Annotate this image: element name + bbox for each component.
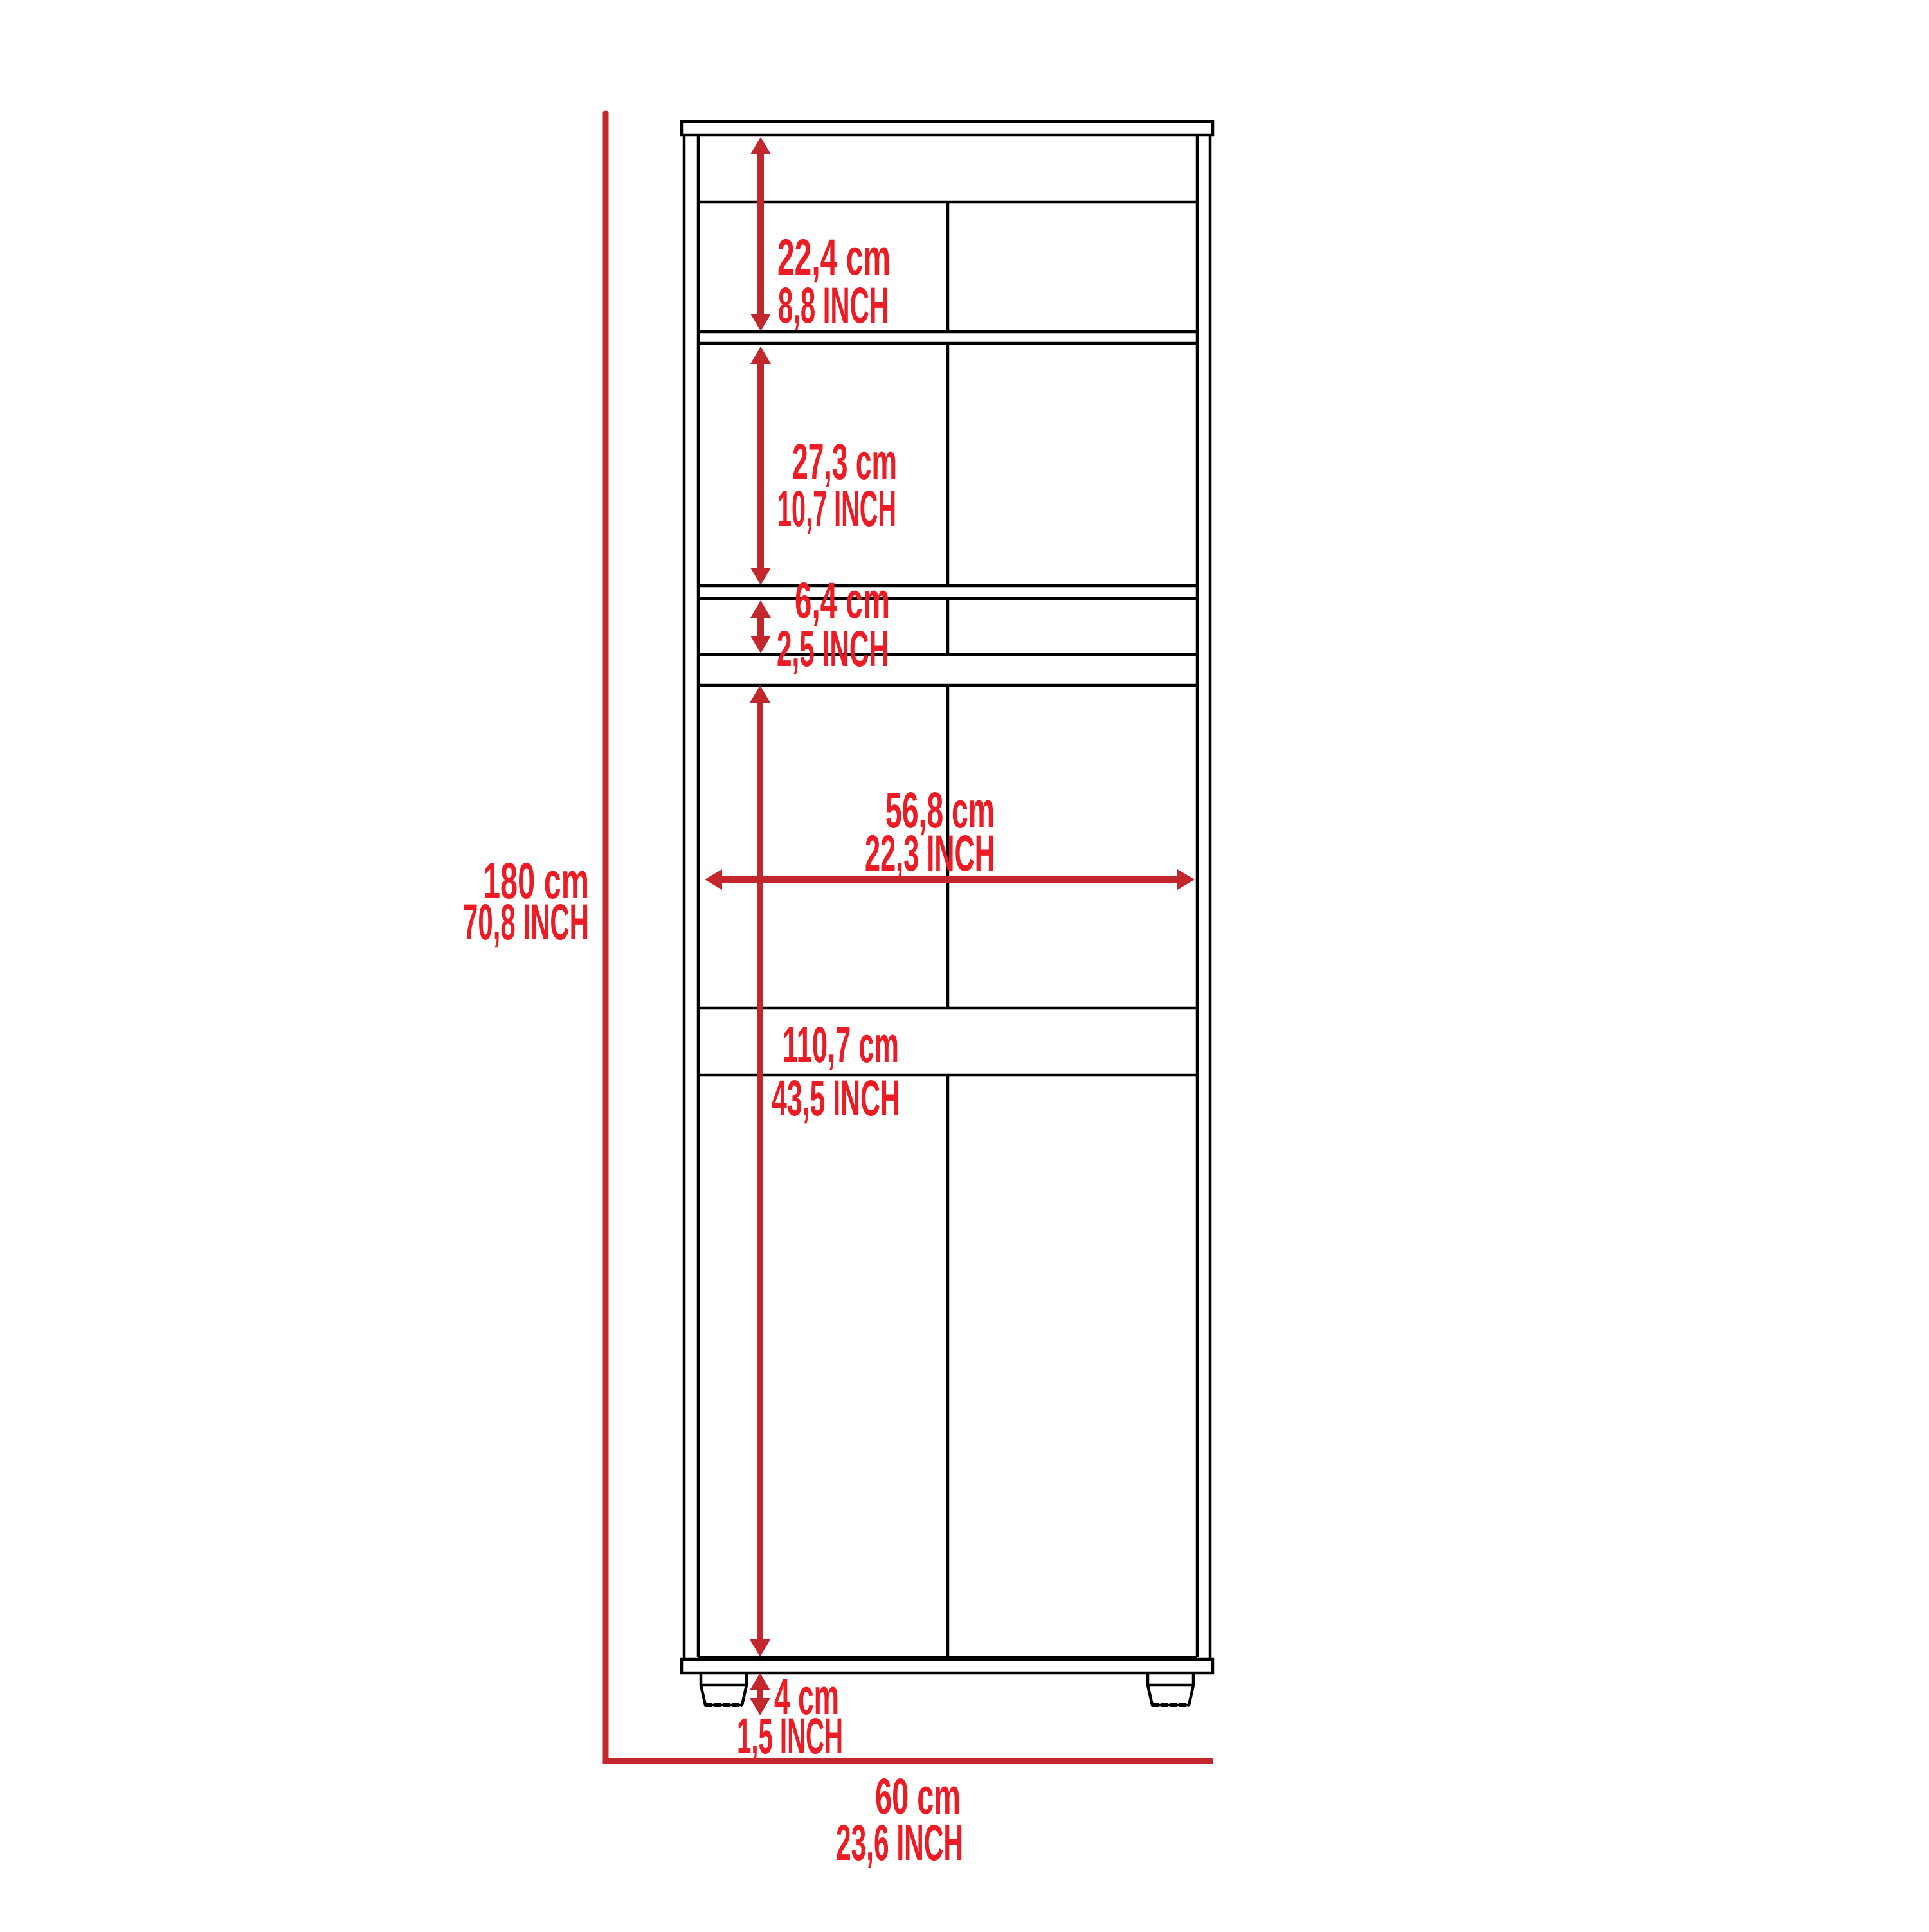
svg-text:2,5 INCH: 2,5 INCH <box>777 621 889 678</box>
svg-text:70,8 INCH: 70,8 INCH <box>463 894 589 951</box>
svg-text:10,7 INCH: 10,7 INCH <box>777 481 896 537</box>
svg-text:8,8 INCH: 8,8 INCH <box>778 278 889 334</box>
svg-text:23,6 INCH: 23,6 INCH <box>836 1815 963 1872</box>
svg-text:43,5 INCH: 43,5 INCH <box>772 1070 900 1127</box>
svg-text:110,7 cm: 110,7 cm <box>783 1017 899 1074</box>
svg-text:22,3 INCH: 22,3 INCH <box>865 826 995 882</box>
svg-text:1,5 INCH: 1,5 INCH <box>737 1708 843 1765</box>
